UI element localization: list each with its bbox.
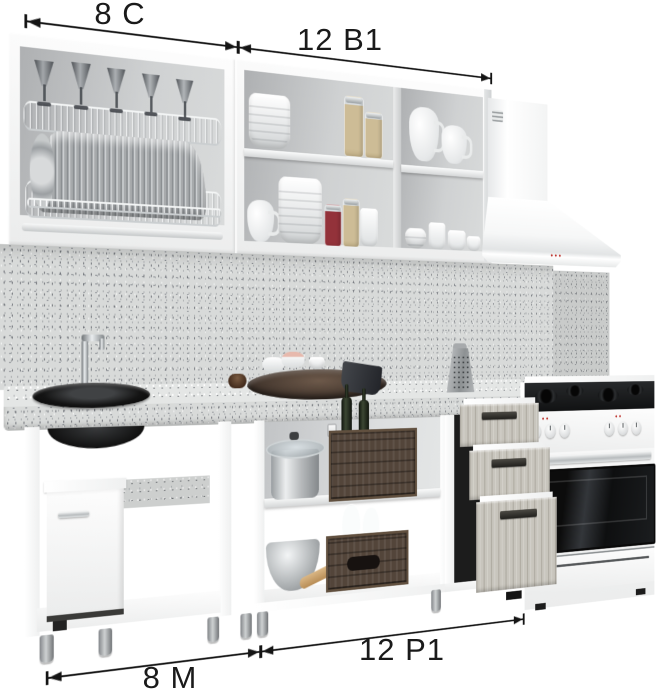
dimension-label-upper: 12 В1 xyxy=(282,22,398,58)
burner xyxy=(627,384,643,395)
cup xyxy=(448,230,466,251)
kitchen-scene xyxy=(0,0,660,700)
glass-jar xyxy=(343,198,360,248)
stove-knob xyxy=(632,421,642,435)
back-wall-strip xyxy=(120,475,210,508)
wine-glass-icon xyxy=(69,62,92,111)
burner xyxy=(566,385,583,396)
cabinet-side-panel xyxy=(254,420,264,612)
cabinet-side-panel xyxy=(218,421,231,616)
small-cup xyxy=(309,357,325,369)
wall-cabinet-upper xyxy=(235,58,491,263)
base-cabinet-open xyxy=(254,415,449,613)
bowl-stack xyxy=(249,92,290,150)
wine-bottle xyxy=(341,397,351,434)
bowl-stack xyxy=(279,176,322,244)
wine-glass-icon xyxy=(105,67,127,113)
glass-jar xyxy=(344,95,363,158)
burner xyxy=(535,389,557,404)
stove-knob xyxy=(560,423,570,438)
canister xyxy=(360,208,378,247)
cooktop xyxy=(525,381,655,412)
bin-foot xyxy=(53,620,67,631)
dimension-label-work-base: 12 Р1 xyxy=(344,632,460,668)
stove-knob xyxy=(604,422,614,436)
base-cabinet-sink xyxy=(24,421,231,637)
cabinet-leg xyxy=(257,611,268,637)
pitcher xyxy=(442,124,467,165)
hood-indicator-lights xyxy=(550,253,562,259)
pot-lid-knob xyxy=(289,432,298,440)
stove-knob xyxy=(618,421,628,435)
cabinet-leg xyxy=(431,589,441,612)
faucet-spout-tip xyxy=(99,338,104,350)
wine-glass-icon xyxy=(140,73,161,117)
cabinet-leg xyxy=(207,616,219,642)
cabinet-divider xyxy=(393,87,401,248)
pitcher xyxy=(409,106,439,163)
wall-cabinet-dryer xyxy=(7,31,235,253)
small-brown-bowl xyxy=(228,374,246,389)
cup xyxy=(467,236,481,251)
wine-glass-icon xyxy=(174,79,195,122)
cabinet-leg xyxy=(40,634,54,663)
panel-indicator-lights xyxy=(541,416,549,421)
bowl-stack xyxy=(405,228,426,249)
drawer-unit-foot xyxy=(506,590,522,600)
backsplash-side-return xyxy=(553,271,609,377)
stove-foot xyxy=(636,588,646,595)
berry-jar xyxy=(325,204,342,247)
drawer-front xyxy=(460,403,539,447)
sink-bowl-underside xyxy=(48,426,145,450)
cabinet-side-panel xyxy=(24,427,39,638)
stove-knob xyxy=(545,424,555,439)
dimension-label-sink-base: 8 М xyxy=(120,660,220,696)
cabinet-leg xyxy=(99,628,112,656)
wine-crate xyxy=(329,428,417,502)
stove-foot xyxy=(535,603,546,611)
dimension-label-dryer: 8 С xyxy=(70,0,170,32)
burner xyxy=(598,388,619,402)
milk-jug xyxy=(247,199,274,242)
cabinet-leg xyxy=(240,613,251,639)
faucet-column xyxy=(82,340,89,387)
drawer-unit-side-panel xyxy=(445,415,455,592)
glass-jar xyxy=(365,111,383,159)
hood-vent-grille xyxy=(492,110,503,123)
kitchen-product-photo: 8 С 12 В1 12 Р1 8 М xyxy=(0,0,660,700)
drawer-handle xyxy=(482,411,517,419)
under-sink-bin xyxy=(47,488,124,618)
panel-indicator-lights xyxy=(614,414,622,419)
cup xyxy=(429,222,446,250)
small-bowl-berries xyxy=(281,352,304,368)
wine-glass-icon xyxy=(32,60,55,108)
